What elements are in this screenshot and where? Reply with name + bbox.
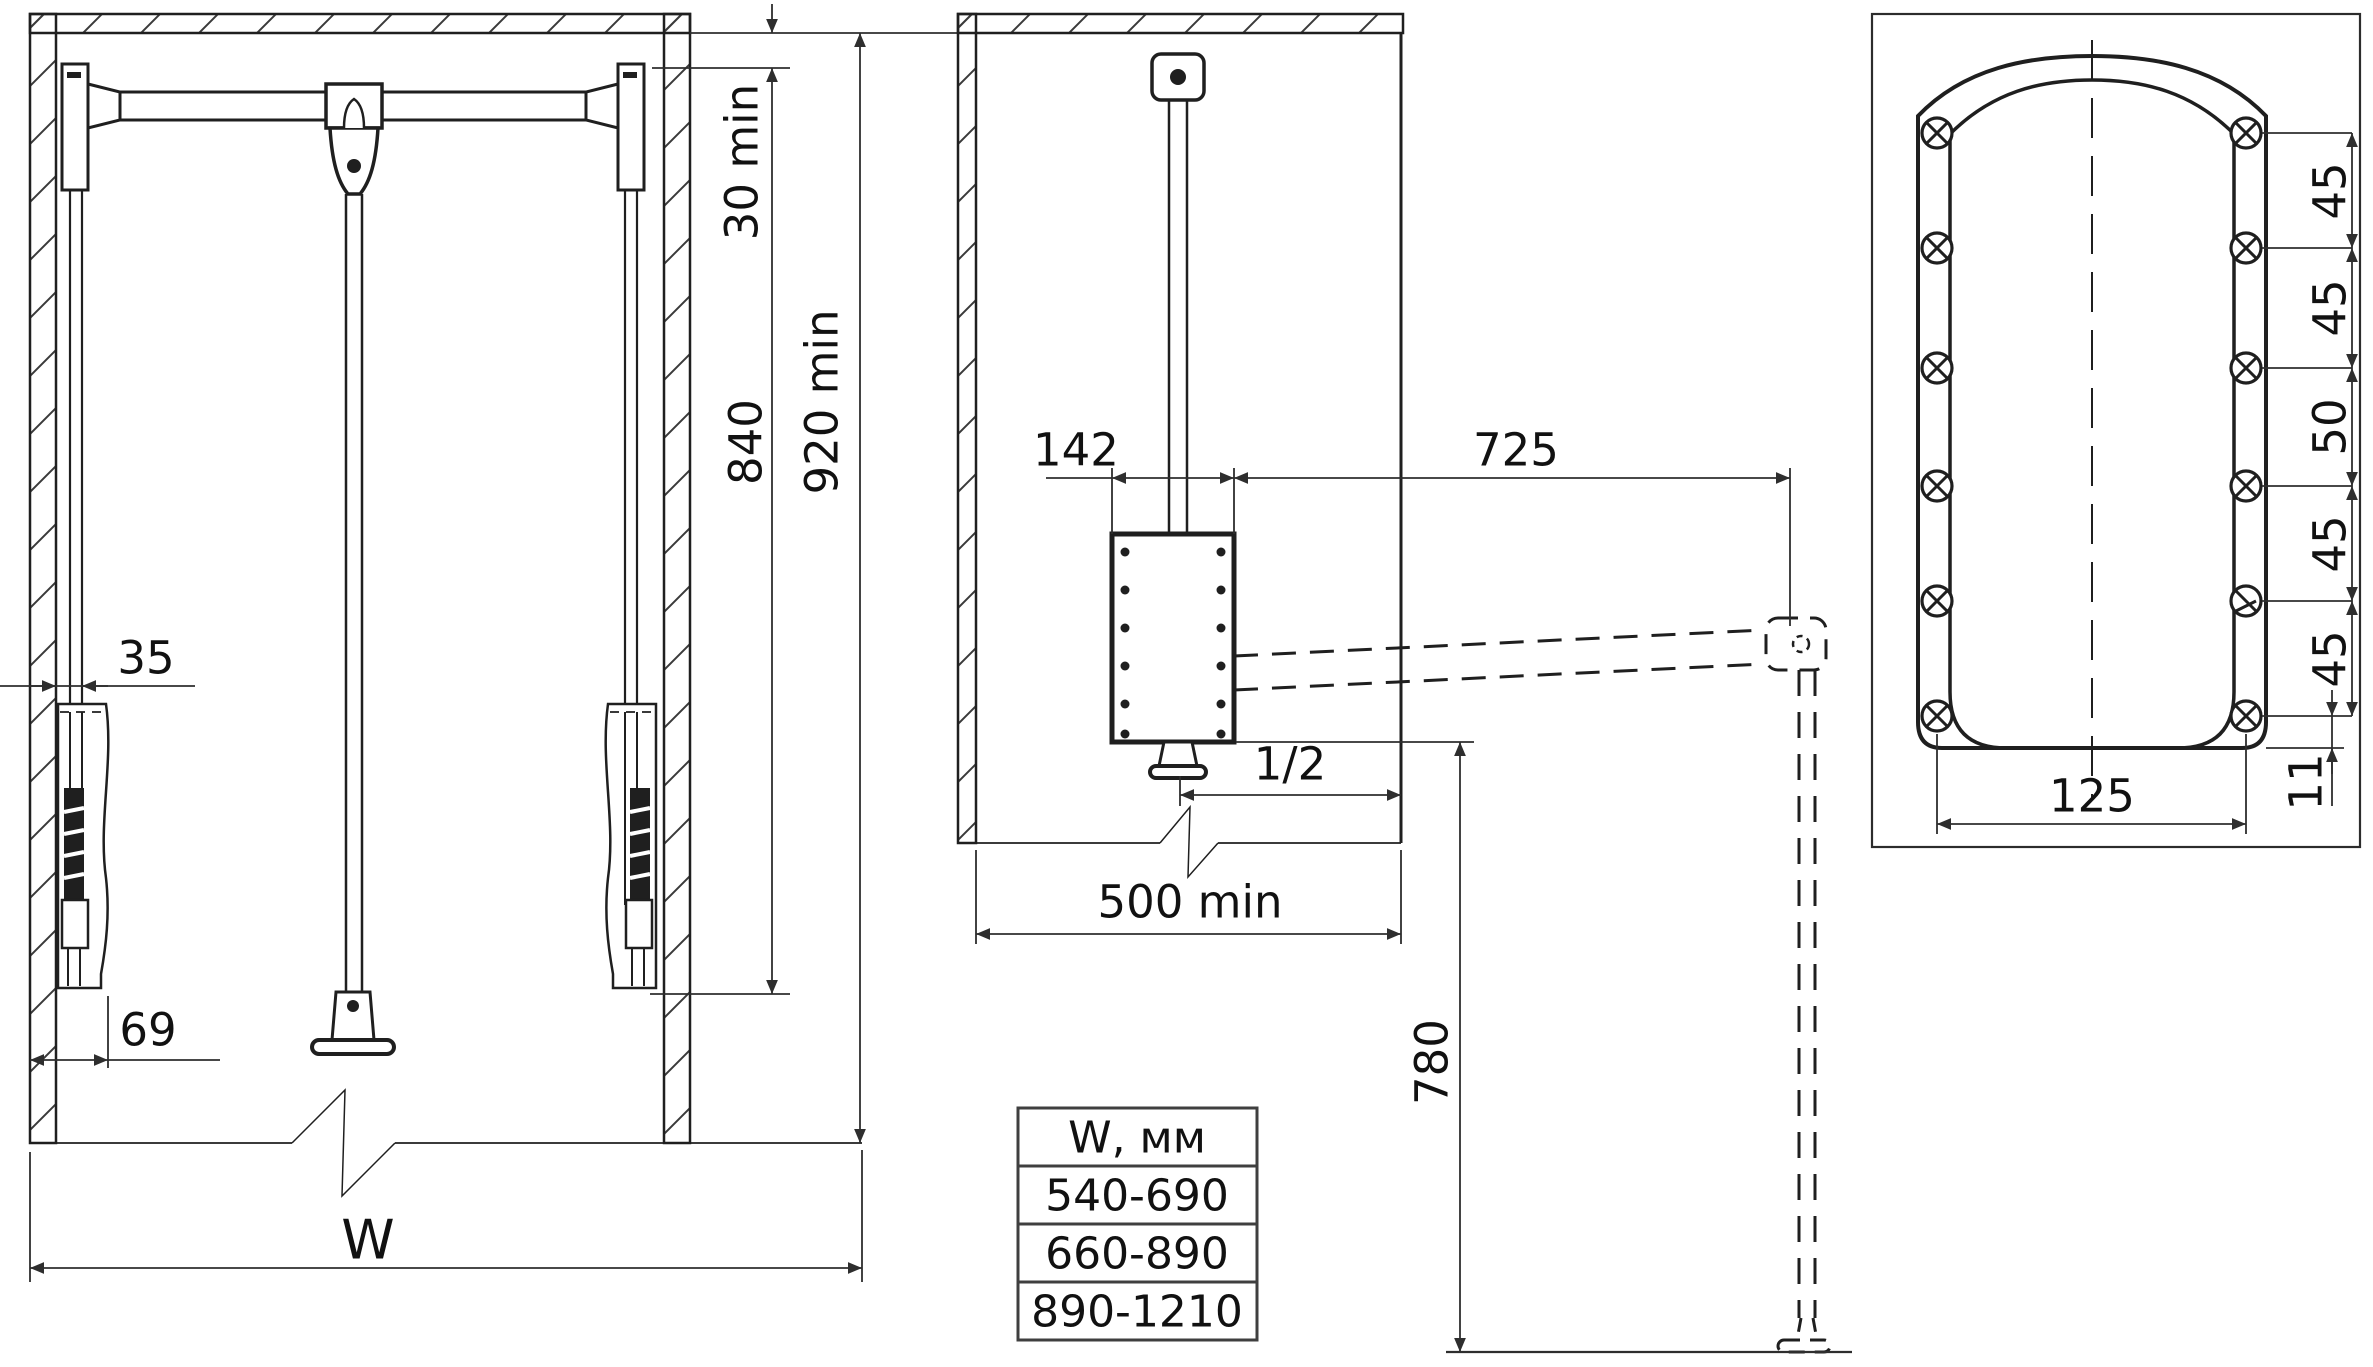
table-row: 890-1210 [1031,1287,1243,1338]
w-table: W, мм 540-690 660-890 890-1210 [1018,1108,1257,1340]
dim-label-screw-spacing: 45 [2304,279,2357,336]
plate-view [1872,14,2360,847]
side-arm-right [606,190,656,988]
dim-label-mechanism-offset: 69 [119,1004,176,1057]
dim-label-cabinet-height: 920 min [796,309,849,494]
lift-mechanism-side [1112,54,1234,778]
lowered-position-dashed [1234,618,1830,1352]
dim-label-lowered-drop: 780 [1406,1019,1459,1105]
dim-label-bar-travel: 840 [720,399,773,485]
front-view-labels: 30 min 840 920 min 35 69 W [117,84,848,1272]
table-row: 540-690 [1045,1171,1229,1222]
dim-label-cabinet-width: W [341,1209,394,1272]
dim-label-arm-reach: 725 [1473,424,1559,477]
table-header: W, мм [1068,1113,1206,1164]
table-row: 660-890 [1045,1229,1229,1280]
technical-drawing-page: 30 min 840 920 min 35 69 W [0,0,2373,1367]
dim-label-screw-spacing: 45 [2304,162,2357,219]
dim-label-housing-width: 142 [1033,424,1119,477]
dim-label-wall-offset: 35 [117,632,174,685]
dim-label-half-width: 1/2 [1254,738,1326,791]
dim-label-plate-width: 125 [2049,770,2135,823]
central-arm [312,84,394,1054]
dim-label-ceiling-gap: 30 min [716,84,769,240]
dim-label-edge-offset: 11 [2280,753,2333,810]
dim-label-screw-spacing: 45 [2304,515,2357,572]
wardrobe-lift-drawing: 30 min 840 920 min 35 69 W [0,0,2373,1367]
side-cabinet-floor [976,807,1401,877]
side-arm-left [58,190,108,988]
front-cabinet-floor [30,1090,862,1196]
dim-label-screw-spacing: 45 [2304,630,2357,687]
dim-label-cabinet-depth: 500 min [1097,876,1282,929]
dim-label-screw-spacing: 50 [2304,398,2357,455]
